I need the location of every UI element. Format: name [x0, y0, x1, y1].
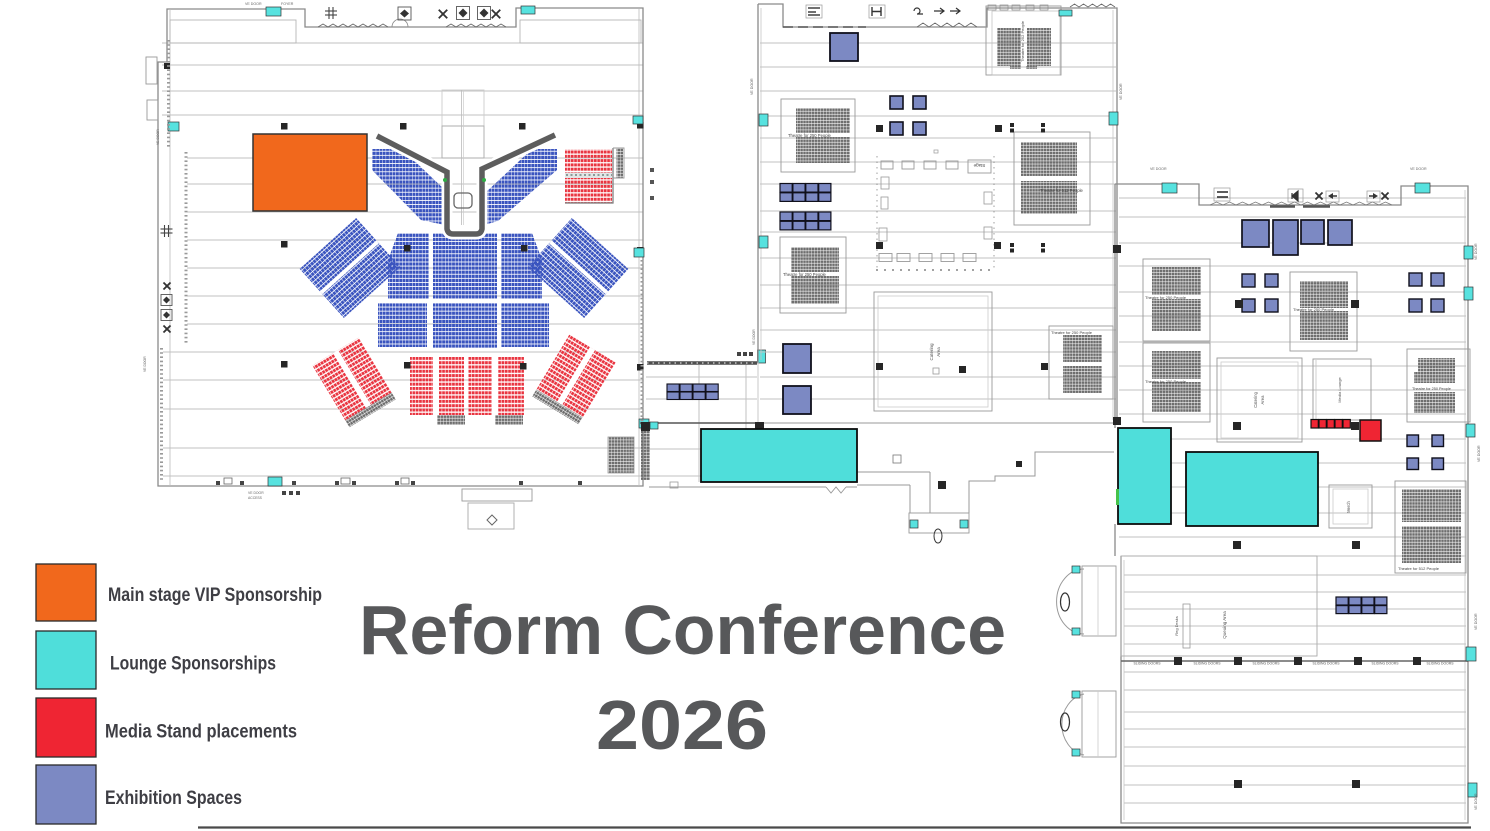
svg-text:VE DOOR: VE DOOR: [1474, 793, 1478, 810]
svg-text:Theatre for 250 People: Theatre for 250 People: [788, 133, 832, 138]
svg-text:Theatre for 250 People: Theatre for 250 People: [1145, 295, 1187, 300]
svg-text:Theatre for 250 People: Theatre for 250 People: [1412, 387, 1451, 391]
svg-text:Theatre for 252 People: Theatre for 252 People: [1020, 20, 1025, 62]
svg-text:Media Lounge: Media Lounge: [1337, 377, 1342, 403]
svg-text:Lounge Sponsorships: Lounge Sponsorships: [110, 653, 276, 675]
svg-text:VE DOOR: VE DOOR: [1474, 243, 1478, 260]
svg-text:Theatre for 512 People: Theatre for 512 People: [1398, 566, 1440, 571]
svg-text:Theatre for 250 People: Theatre for 250 People: [1051, 330, 1093, 335]
svg-text:Stage: Stage: [973, 163, 985, 168]
svg-text:2026: 2026: [596, 686, 768, 764]
svg-text:VE DOOR: VE DOOR: [1474, 613, 1478, 630]
svg-text:FOYER: FOYER: [281, 2, 294, 6]
svg-text:Catering: Catering: [1253, 391, 1258, 407]
svg-text:SLIDING DOORS: SLIDING DOORS: [1313, 662, 1341, 666]
svg-text:VE DOOR: VE DOOR: [143, 356, 147, 372]
svg-text:Merch: Merch: [1346, 501, 1351, 513]
svg-text:SLIDING DOORS: SLIDING DOORS: [1372, 662, 1400, 666]
svg-text:Exhibition Spaces: Exhibition Spaces: [105, 787, 242, 809]
svg-text:Theatre for 512 People: Theatre for 512 People: [1040, 188, 1084, 193]
svg-text:VE DOOR: VE DOOR: [1410, 167, 1427, 171]
svg-text:SLIDING DOORS: SLIDING DOORS: [1253, 662, 1281, 666]
svg-text:VE DOOR: VE DOOR: [248, 491, 264, 495]
svg-text:VE DOOR: VE DOOR: [1477, 445, 1481, 462]
svg-text:VE DOOR: VE DOOR: [245, 2, 262, 6]
svg-text:Reg Desks: Reg Desks: [1174, 616, 1179, 636]
svg-text:Catering: Catering: [929, 343, 934, 361]
svg-text:Theatre for 250 People: Theatre for 250 People: [1145, 379, 1187, 384]
svg-text:Queuing Area: Queuing Area: [1222, 611, 1227, 639]
svg-text:Reform Conference: Reform Conference: [359, 591, 1006, 669]
svg-text:SLIDING DOORS: SLIDING DOORS: [1427, 662, 1455, 666]
svg-text:SLIDING DOORS: SLIDING DOORS: [1134, 662, 1162, 666]
svg-text:Media Stand placements: Media Stand placements: [105, 721, 297, 743]
svg-text:Area: Area: [1260, 395, 1265, 405]
svg-text:Theatre for 250 People: Theatre for 250 People: [1293, 307, 1335, 312]
svg-text:Area: Area: [936, 347, 941, 357]
svg-text:VE DOOR: VE DOOR: [156, 129, 160, 145]
svg-text:Main stage VIP Sponsorship: Main stage VIP Sponsorship: [108, 584, 322, 606]
svg-text:Theatre for 250 People: Theatre for 250 People: [783, 272, 827, 277]
svg-text:VE DOOR: VE DOOR: [1119, 83, 1123, 100]
svg-text:VE DOOR: VE DOOR: [750, 78, 754, 95]
svg-text:VE DOOR: VE DOOR: [752, 329, 756, 345]
svg-text:VE DOOR: VE DOOR: [1150, 167, 1167, 171]
svg-text:SLIDING DOORS: SLIDING DOORS: [1194, 662, 1222, 666]
svg-text:ACCESS: ACCESS: [248, 496, 263, 500]
